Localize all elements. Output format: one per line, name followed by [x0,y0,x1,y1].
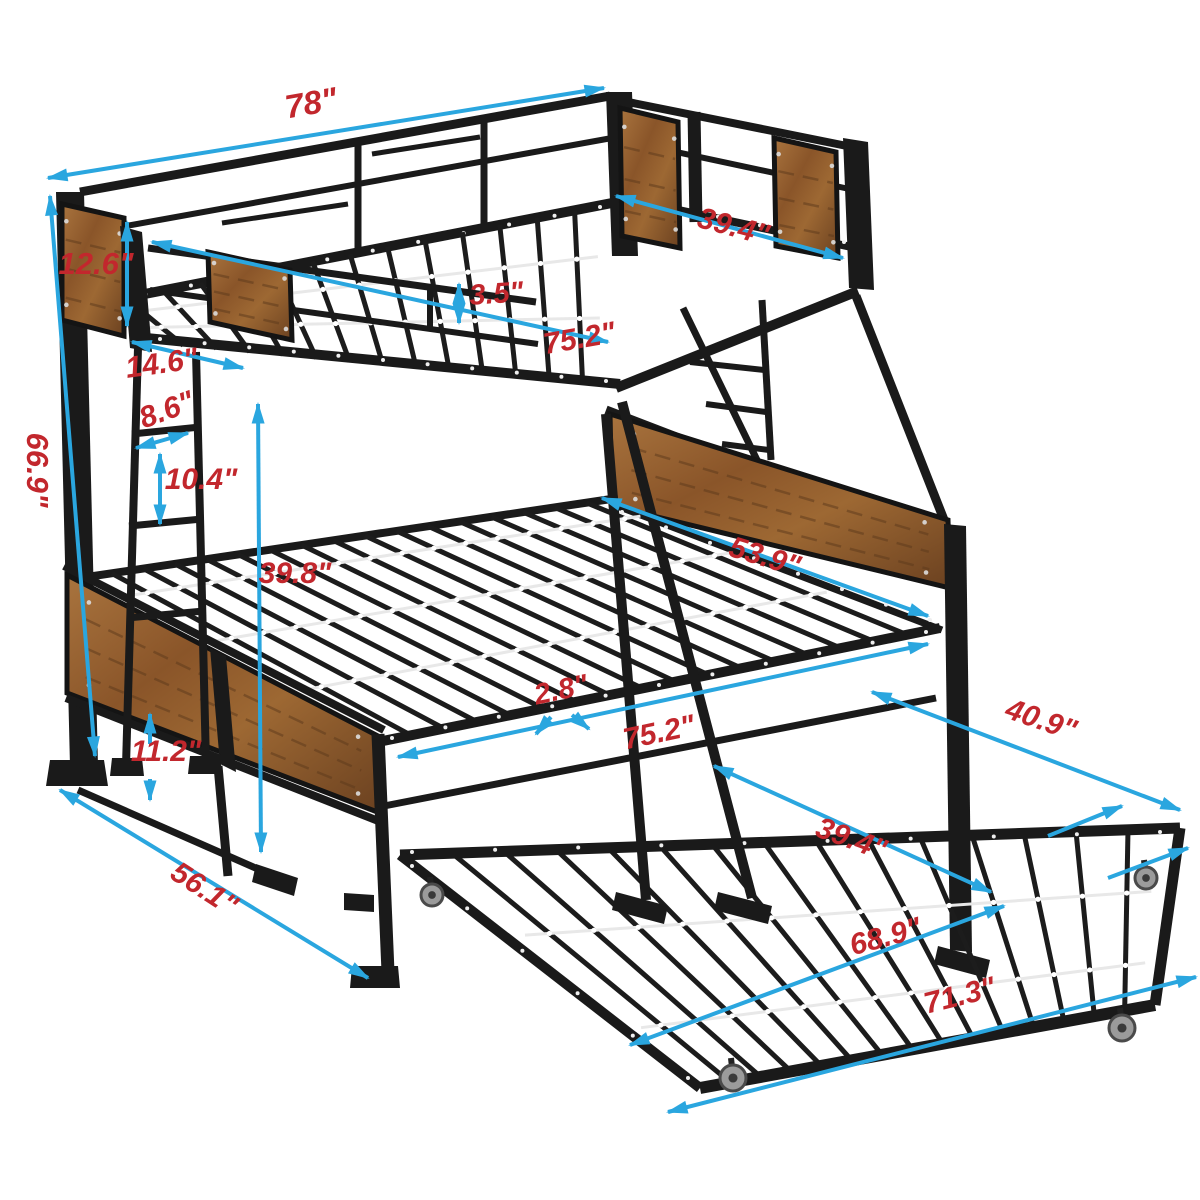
dimension-label: 78" [282,80,340,126]
dimension-label: 56.1" [165,855,245,923]
dimension-label: 11.2" [131,735,202,768]
trundle-bed [400,828,1180,1091]
dimension-label: 39.8" [259,557,332,590]
upper-foot-end [606,92,874,290]
dimension-label: 3.5" [468,276,525,312]
dimension-label: 75.2" [541,316,619,361]
dimension-lower-depth: 56.1" [60,790,368,978]
diagram-canvas: 78"66.9"12.6"39.4"3.5"75.2"14.6"8.6"10.4… [0,0,1200,1200]
dimension-overall-length: 78" [48,80,604,178]
dimension-label: 12.6" [58,246,134,281]
dimension-label: 39.4" [811,811,891,867]
bunk-bed-dimension-diagram: 78"66.9"12.6"39.4"3.5"75.2"14.6"8.6"10.4… [0,0,1200,1200]
ladder-right [683,300,771,460]
upper-foot-panel-left [620,108,680,248]
dimension-label: 39.4" [694,201,773,252]
dimension-rung-width: 8.6" [135,385,200,448]
dimension-label: 66.9" [20,432,55,508]
dimension-label: 40.9" [1000,692,1081,747]
dimension-label: 10.4" [165,463,238,496]
